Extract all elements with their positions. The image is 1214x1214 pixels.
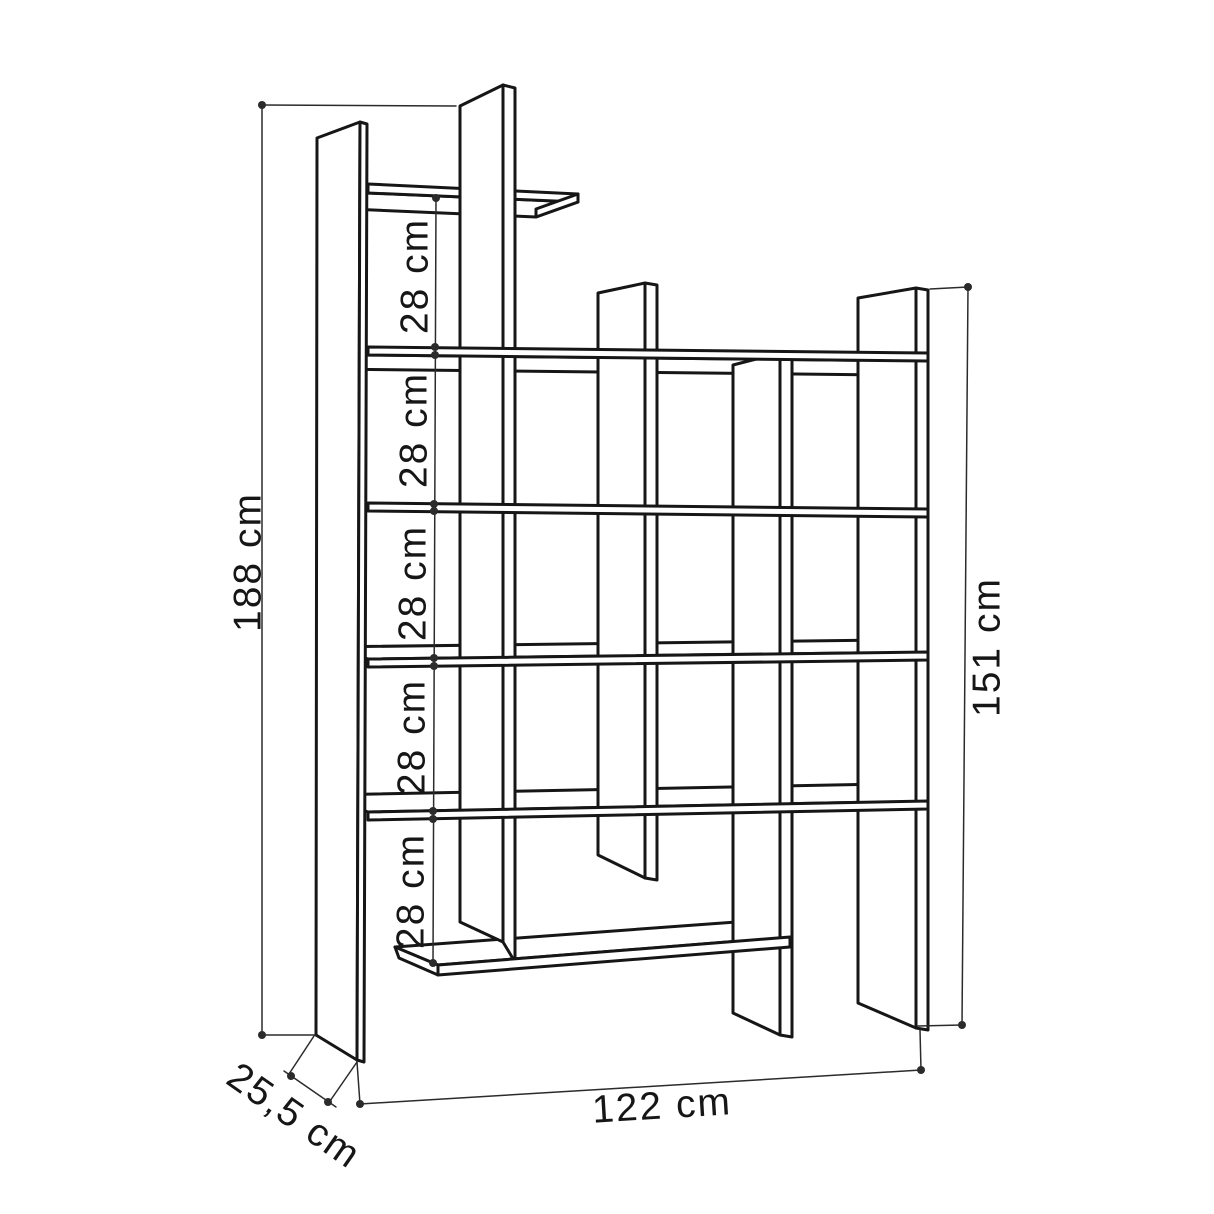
shelf-gap-label-1: 28 cm — [394, 218, 437, 334]
shelf-gap-label-2: 28 cm — [393, 372, 436, 488]
divider-panel-2-edge — [780, 353, 792, 1037]
divider-panel-2-face — [733, 353, 780, 1035]
dot — [429, 815, 437, 823]
center-tall-panel-edge — [503, 85, 515, 962]
dot — [964, 283, 972, 291]
dot — [430, 500, 438, 508]
shelf2-front-edge — [368, 503, 928, 517]
width-left-tick — [357, 1062, 360, 1104]
diagram-canvas: 188 cm 28 cm 28 cm 28 cm 28 cm 28 cm 151… — [0, 0, 1214, 1214]
dot — [430, 507, 438, 515]
right-height-bottom-tick — [918, 1025, 962, 1026]
dot — [324, 1098, 332, 1106]
dot — [258, 1031, 266, 1039]
bookcase-dimension-drawing: 188 cm 28 cm 28 cm 28 cm 28 cm 28 cm 151… — [0, 0, 1214, 1214]
right-height-label: 151 cm — [966, 577, 1009, 717]
left-side-panel-face — [316, 122, 360, 1060]
dot — [917, 1066, 925, 1074]
right-height-top-tick — [930, 287, 968, 289]
shelf-gap-label-3: 28 cm — [392, 525, 435, 641]
divider-panel-1-edge — [645, 283, 657, 880]
depth-label: 25,5 cm — [219, 1055, 369, 1178]
left-side-panel-edge — [357, 122, 367, 1062]
dot — [430, 654, 438, 662]
dot — [429, 959, 437, 967]
dot — [430, 662, 438, 670]
divider-panel-1-face — [598, 283, 645, 878]
dot — [431, 343, 439, 351]
dot — [958, 1021, 966, 1029]
height-top-tick — [262, 105, 456, 106]
dot — [432, 194, 440, 202]
dot — [287, 1072, 295, 1080]
total-height-label: 188 cm — [227, 492, 270, 632]
width-right-tick — [920, 1030, 921, 1070]
dot — [258, 101, 266, 109]
depth-right-tick — [330, 1062, 357, 1101]
dot — [431, 351, 439, 359]
shelf-gap-label-4: 28 cm — [391, 679, 434, 795]
depth-left-tick — [289, 1036, 314, 1074]
shelf-gap-label-5: 28 cm — [390, 833, 433, 949]
dot — [429, 807, 437, 815]
width-label: 122 cm — [591, 1080, 733, 1131]
dot — [356, 1100, 364, 1108]
